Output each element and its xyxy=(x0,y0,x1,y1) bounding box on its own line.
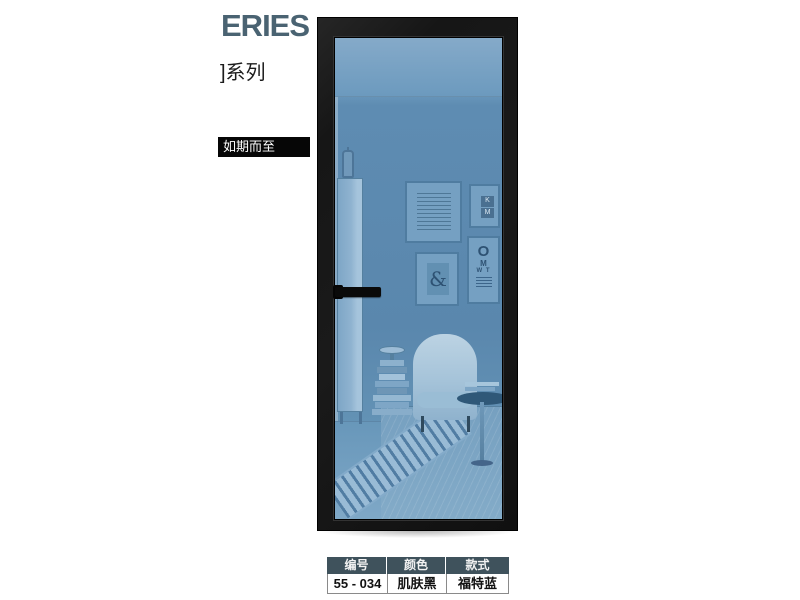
wall-frame-ampersand: & xyxy=(415,252,459,306)
series-subtitle: ]系列 xyxy=(220,56,266,85)
wall-frame-eye-chart: O M W T xyxy=(467,236,500,304)
scene-book-stack xyxy=(371,360,413,426)
door-glass: K M & O M W T xyxy=(334,37,503,520)
letter-tile-top: K xyxy=(481,196,494,208)
spec-value-style: 福特蓝 xyxy=(446,574,509,594)
cabinet-leg xyxy=(359,412,362,424)
coffee-table-leg xyxy=(480,402,484,462)
spec-header-color: 颜色 xyxy=(387,557,446,574)
wall-frame-typography xyxy=(405,181,462,243)
spec-value-number: 55 - 034 xyxy=(327,574,387,594)
scene-lantern xyxy=(342,150,354,178)
scene-armchair xyxy=(413,334,477,420)
door-handle xyxy=(335,287,381,297)
armchair-leg xyxy=(467,416,470,432)
scene-mini-stool xyxy=(379,346,405,360)
arrival-badge: 如期而至 xyxy=(218,137,310,157)
series-title: ERIES xyxy=(221,8,309,44)
ampersand-mat: & xyxy=(427,263,449,295)
spec-table-data-row: 55 - 034 肌肤黑 福特蓝 xyxy=(327,574,509,594)
spec-value-color: 肌肤黑 xyxy=(387,574,446,594)
spec-header-number: 编号 xyxy=(327,557,387,574)
cabinet-leg xyxy=(340,412,343,424)
coffee-table-books xyxy=(465,382,499,392)
spec-table: 编号 颜色 款式 55 - 034 肌肤黑 福特蓝 xyxy=(327,557,509,594)
coffee-table-foot xyxy=(471,460,493,466)
eye-chart-row: W T xyxy=(469,268,498,275)
door-shadow xyxy=(321,531,515,538)
ampersand-glyph: & xyxy=(429,267,447,291)
armchair-leg xyxy=(421,416,424,432)
eye-chart-row: O xyxy=(469,244,498,259)
typography-lines xyxy=(417,193,451,231)
spec-header-style: 款式 xyxy=(446,557,509,574)
letter-tile-bottom: M xyxy=(481,208,494,219)
spec-table-header-row: 编号 颜色 款式 xyxy=(327,557,509,574)
wall-frame-letter-tile: K M xyxy=(469,184,500,228)
eye-chart-small-rows xyxy=(476,277,492,287)
eye-chart: O M W T xyxy=(469,244,498,287)
letter-tile: K M xyxy=(481,196,494,218)
door-product-photo: K M & O M W T xyxy=(317,17,518,531)
scene-ceiling xyxy=(335,38,502,97)
catalog-page: ERIES ]系列 如期而至 K M & xyxy=(0,0,800,600)
eye-chart-row: M xyxy=(469,259,498,268)
